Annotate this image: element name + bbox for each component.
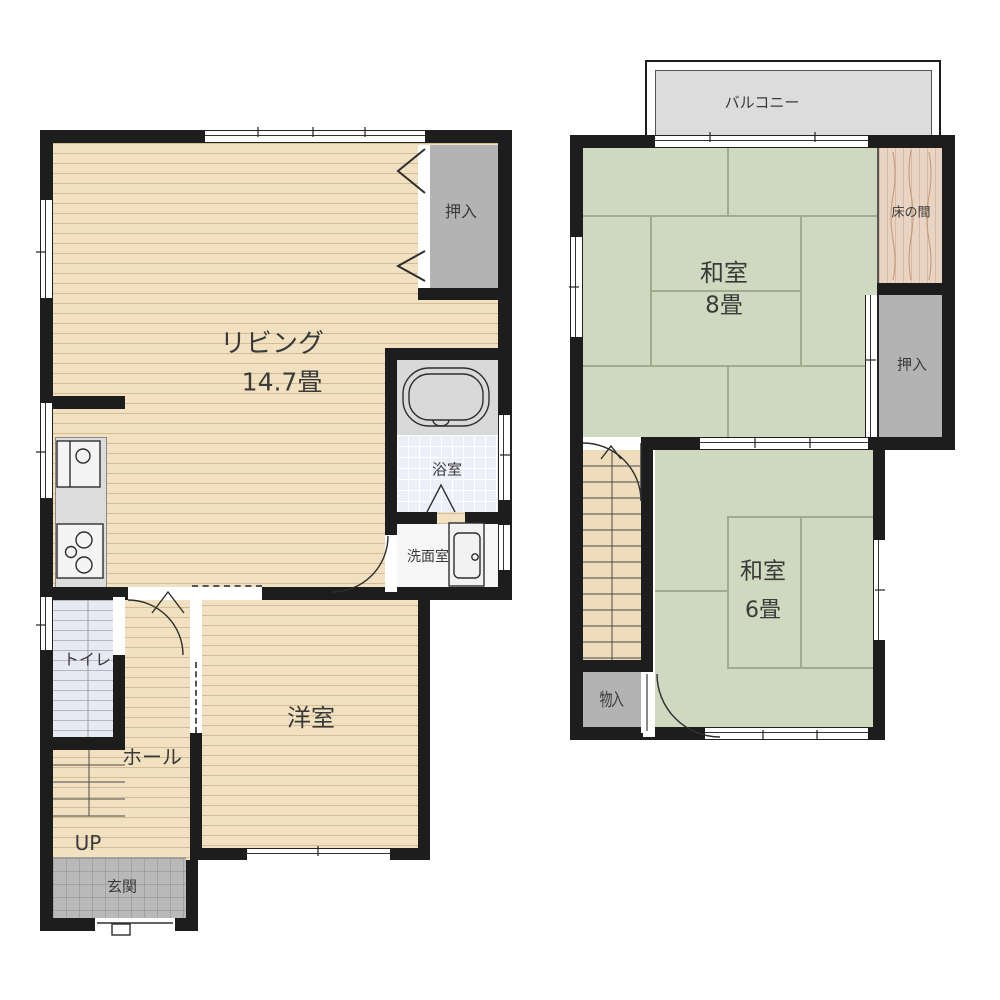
hall-label: ホール xyxy=(122,747,182,767)
wall xyxy=(40,737,125,750)
wall xyxy=(877,283,955,295)
bathtub-zone xyxy=(397,360,498,435)
door-strip-closet-1f xyxy=(418,145,430,288)
window xyxy=(40,200,53,298)
wall xyxy=(190,733,202,860)
wall xyxy=(40,298,53,403)
wall xyxy=(570,337,583,740)
door-strip-storage-2f xyxy=(641,672,653,733)
tatami-line xyxy=(727,667,873,669)
stairs-up-label: UP xyxy=(75,833,102,853)
wall xyxy=(40,130,53,200)
tatami-line xyxy=(650,215,652,365)
toilet-label: トイレ xyxy=(63,652,111,668)
window xyxy=(40,403,53,498)
wall xyxy=(113,655,125,737)
door-opening-washroom xyxy=(385,535,397,592)
wall xyxy=(465,512,498,524)
wall xyxy=(385,348,498,360)
tokonoma-label: 床の間 xyxy=(891,207,930,220)
door-opening-toilet xyxy=(113,597,125,655)
window xyxy=(655,135,868,148)
wall xyxy=(190,848,247,860)
wall xyxy=(868,727,885,740)
tatami-line xyxy=(583,215,877,217)
kitchen-counter xyxy=(55,437,107,590)
sliding-door-fusuma xyxy=(700,437,868,450)
tatami-line xyxy=(655,590,727,592)
tatami-line xyxy=(727,148,729,215)
wall xyxy=(641,450,653,672)
entrance-label: 玄関 xyxy=(107,880,137,895)
floor-plan: リビング 14.7畳 押入 浴室 洗面室 トイレ ホール UP 玄関 洋室 バル… xyxy=(0,0,1000,1000)
closet-2f-label: 押入 xyxy=(897,358,927,373)
sliding-door-closet-2f xyxy=(865,295,879,437)
washroom-label: 洗面室 xyxy=(407,550,449,564)
wall xyxy=(570,135,583,237)
dashed-partition xyxy=(195,662,197,733)
window xyxy=(205,130,425,143)
japanese-room-8-label: 和室 xyxy=(700,261,748,285)
wall xyxy=(418,288,512,300)
wall xyxy=(175,918,198,931)
balcony-label: バルコニー xyxy=(725,96,800,111)
wall xyxy=(498,500,512,525)
door-opening-stairs-2f xyxy=(583,437,641,450)
window xyxy=(498,415,512,500)
window xyxy=(247,848,390,860)
wall xyxy=(40,918,95,931)
wall xyxy=(570,727,705,740)
door-opening-western-room xyxy=(190,593,202,662)
window xyxy=(705,727,868,740)
partition-gap-living-western xyxy=(192,587,262,600)
window xyxy=(570,237,583,337)
wall xyxy=(873,640,885,740)
window xyxy=(498,525,512,570)
wall xyxy=(40,130,205,143)
tatami-line xyxy=(727,516,729,667)
wall xyxy=(40,650,53,930)
staircase-2f xyxy=(583,450,641,672)
wall xyxy=(385,360,397,535)
bath-label: 浴室 xyxy=(432,463,462,478)
western-room-label: 洋室 xyxy=(287,706,335,730)
japanese-room-6-size: 6畳 xyxy=(745,600,781,622)
tatami-line xyxy=(583,365,877,367)
entrance-door-opening xyxy=(95,918,175,931)
wall xyxy=(390,848,430,860)
wall xyxy=(868,437,955,450)
tatami-line xyxy=(800,215,802,365)
japanese-room-8-size: 8畳 xyxy=(705,295,743,318)
window xyxy=(873,540,885,640)
tokonoma-edge xyxy=(877,148,879,283)
tatami-line xyxy=(800,516,802,667)
wall xyxy=(570,660,653,672)
window xyxy=(40,597,53,650)
tatami-line xyxy=(727,365,729,437)
wall xyxy=(641,437,700,450)
wall xyxy=(385,512,437,524)
storage-2f-label: 物入 xyxy=(599,692,622,710)
wall xyxy=(418,595,430,860)
living-room-label: リビング xyxy=(220,331,324,357)
japanese-room-6-label: 和室 xyxy=(740,561,786,584)
wall xyxy=(40,498,53,597)
dashed-partition xyxy=(192,585,262,587)
wall xyxy=(873,450,885,540)
wall xyxy=(498,130,512,415)
door-opening-hall xyxy=(128,587,190,600)
living-room-size: 14.7畳 xyxy=(242,370,323,395)
closet-1f-label: 押入 xyxy=(445,204,477,220)
japanese-room-6-floor xyxy=(655,450,873,727)
